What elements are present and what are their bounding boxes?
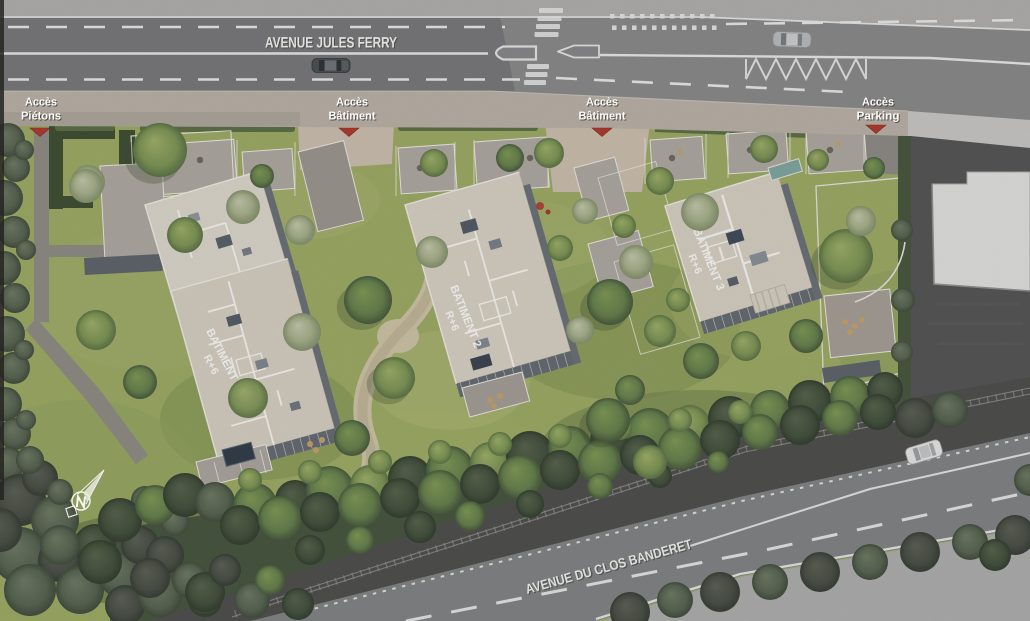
svg-text:Bâtiment: Bâtiment xyxy=(329,111,376,123)
svg-text:Bâtiment: Bâtiment xyxy=(579,111,626,123)
svg-text:Accès: Accès xyxy=(25,97,57,109)
svg-text:Accès: Accès xyxy=(862,97,894,109)
svg-text:Piétons: Piétons xyxy=(21,111,61,123)
svg-text:Accès: Accès xyxy=(586,97,618,109)
svg-text:Parking: Parking xyxy=(857,111,900,123)
svg-text:Accès: Accès xyxy=(336,97,368,109)
